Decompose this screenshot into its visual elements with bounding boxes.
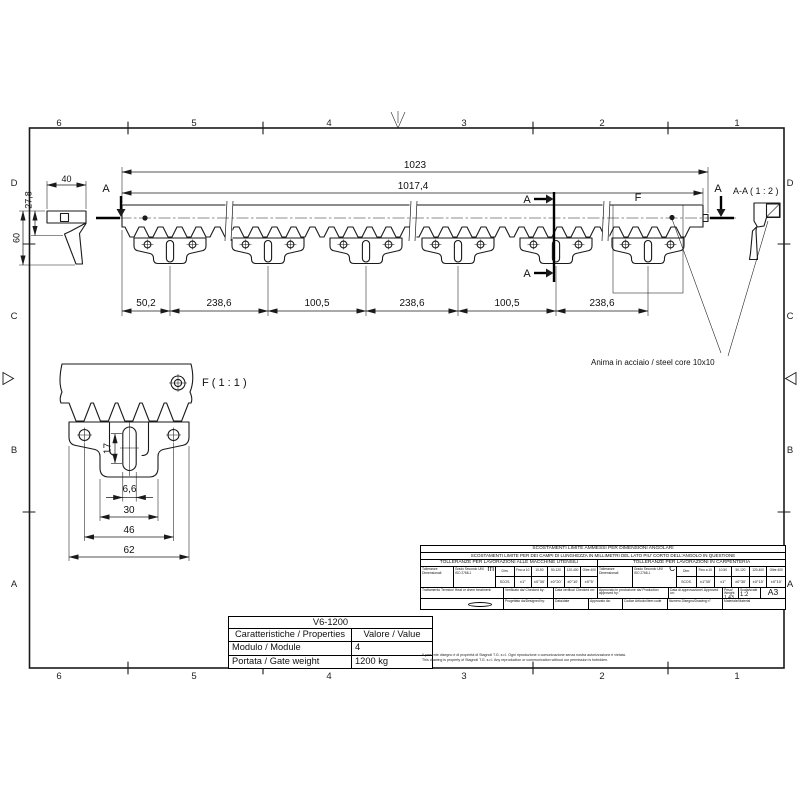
field-approved-by: Approvato da:: [589, 599, 623, 609]
grid-col-bottom-5: 5: [191, 671, 196, 682]
range-label: Oltre 400: [581, 567, 597, 577]
grid-row-left-a: A: [11, 579, 18, 590]
field-prod-approved-by: Approvato in produzione da/ Production a…: [598, 588, 669, 598]
tolerance-value: ±0°20': [548, 577, 564, 587]
tolerance-value: ±0°30': [732, 577, 749, 587]
grade-caption: Grado Secondo UNI ISO 2768-1: [455, 568, 485, 575]
tolerance-value: ±1°: [715, 577, 732, 587]
main-dim-overall: 1023: [404, 160, 427, 171]
grid-col-top-4: 4: [326, 118, 331, 129]
main-view: 1023 1017,4 50,2 238,6 100,5 238,6 100,5…: [96, 160, 738, 316]
chain-dim-label-3: 238,6: [399, 298, 424, 309]
field-item-code: Codice Articolo/Item code: [623, 599, 668, 609]
properties-table: V6-1200 Caratteristiche / Properties Val…: [228, 616, 433, 669]
grid-row-right-d: D: [787, 178, 794, 189]
range-label: 10-50: [532, 567, 548, 577]
tolerance-value: ±1°: [515, 577, 531, 587]
grid-row-left-b: B: [11, 445, 17, 456]
section-label-mid-top: A: [523, 194, 531, 206]
grid-col-bottom-6: 6: [56, 671, 61, 682]
core-dot-1: [142, 215, 147, 220]
bracket-1: [134, 238, 206, 264]
bracket-3: [330, 238, 402, 264]
grade-value: m: [487, 567, 494, 571]
chain-dim-label-1: 238,6: [206, 298, 231, 309]
core-note-leaders: [672, 219, 768, 356]
section-label-right: A: [714, 183, 722, 195]
grid-col-top-1: 1: [734, 118, 739, 129]
chain-dim-label-5: 238,6: [589, 298, 614, 309]
side-dim-rack-height: 27,8: [24, 191, 34, 209]
grid-row-right-a: A: [787, 579, 794, 590]
detail-dim-slot-width: 6,6: [123, 484, 137, 495]
tolerance-value: ±0°30': [532, 577, 548, 587]
field-designed-by: Progettato da/Designed by:: [504, 599, 554, 609]
table-row: Portata / Gate weight 1200 kg: [229, 656, 432, 668]
title-block: SCOSTAMENTI LIMITE AMMESSI PER DIMENSION…: [420, 545, 786, 610]
angular-tolerance-subtitle: SCOSTAMENTI LIMITE PER DEI CAMPI DI LUNG…: [421, 553, 785, 560]
scos-label: SCOS.: [677, 577, 696, 587]
machining-tolerance-table: Tolleranze Dimensionali Grado Secondo UN…: [421, 567, 598, 587]
angular-tolerance-title: SCOSTAMENTI LIMITE AMMESSI PER DIMENSION…: [421, 546, 785, 553]
detail-dim-overall-width: 62: [123, 545, 135, 556]
grid-row-left-c: C: [11, 311, 18, 322]
detail-teeth: [61, 403, 191, 421]
detail-dim-hole-spacing: 46: [123, 525, 135, 536]
table-row: Modulo / Module 4: [229, 642, 432, 655]
tolerance-value: ±0°10': [565, 577, 581, 587]
centering-mark-right: [786, 373, 797, 385]
range-label: 120-400: [750, 567, 767, 577]
detail-dim-slot-length: 17: [103, 443, 114, 455]
centering-mark-top: [391, 111, 405, 128]
grid-col-top-5: 5: [191, 118, 196, 129]
chain-dim-label-4: 100,5: [494, 298, 519, 309]
core-note: Anima in acciaio / steel core 10x10: [591, 358, 715, 367]
section-label-left: A: [102, 183, 110, 195]
range-label: Fino a 10: [515, 567, 531, 577]
chain-dim-label-0: 50,2: [136, 298, 156, 309]
carpentry-tolerance-title: TOLLERANZE PER LAVORAZIONI IN CARPENTERI…: [598, 560, 785, 566]
properties-col-header: Caratteristiche / Properties: [229, 629, 352, 641]
dim-label: Dim.: [677, 567, 696, 577]
grid-col-top-3: 3: [461, 118, 466, 129]
centering-mark-left: [3, 373, 14, 385]
drawing-linework: 6 5 4 3 2 1 6 5 4 3 2 1 D C B A D C B A …: [0, 0, 800, 800]
field-checked-on: Data verifica/ Checked on:: [554, 588, 598, 598]
side-view: 40 27,8 60: [12, 174, 87, 265]
tolerance-value: ±0°5': [581, 577, 597, 587]
grade-cell: Grado Secondo UNI ISO 2768-1 m: [454, 567, 496, 587]
field-weight: Peso/ Weight 1,43 kg: [723, 588, 739, 598]
company-logo-cell: [421, 599, 504, 609]
property-label: Portata / Gate weight: [229, 656, 352, 668]
tolerance-value: ±0°10': [767, 577, 785, 587]
range-label: 120-400: [565, 567, 581, 577]
grid-row-left-d: D: [11, 178, 18, 189]
bracket-2: [232, 238, 304, 264]
scale-value: 1:2: [740, 592, 759, 598]
tolerance-value: ±1°30': [697, 577, 714, 587]
grade-value: C: [669, 567, 675, 571]
range-label: Fino a 10: [697, 567, 714, 577]
grid-col-bottom-4: 4: [326, 671, 331, 682]
detail-letter-label: F: [635, 192, 642, 204]
grade-caption: Grado Secondo UNI ISO 2768-1: [634, 568, 666, 575]
bracket-6: [612, 238, 684, 264]
field-drawing-no: Numero Disegno/Drawing n°: [668, 599, 723, 609]
carpentry-tolerance-table: Tolleranze Dimensionali Grado Secondo UN…: [598, 567, 785, 587]
range-label: 50-120: [548, 567, 564, 577]
grade-cell: Grado Secondo UNI ISO 2768-1 C: [633, 567, 677, 587]
range-label: Oltre 400: [767, 567, 785, 577]
grid-col-bottom-1: 1: [734, 671, 739, 682]
field-material: Materiale/Material: [723, 599, 785, 609]
tolerance-value: ±0°15': [750, 577, 767, 587]
disclaimer-english: This drawing is property of Stagnoli T.G…: [422, 658, 702, 663]
section-view-label: A-A ( 1 : 2 ): [733, 186, 779, 196]
grid-row-right-c: C: [787, 311, 794, 322]
section-label-mid-bottom: A: [523, 268, 531, 280]
range-label: 10-50: [715, 567, 732, 577]
field-treatment: Trattamento Termico/ Heat or chem treatm…: [421, 588, 504, 598]
section-view-aa: A-A ( 1 : 2 ) Anima in acciaio / steel c…: [591, 186, 780, 367]
disclaimer: Il presente disegno è di proprietà di St…: [422, 653, 702, 662]
grid-col-top-6: 6: [56, 118, 61, 129]
machining-tolerance-title: TOLLERANZE PER LAVORAZIONI ALLE MACCHINE…: [421, 560, 598, 566]
chain-dim-label-2: 100,5: [304, 298, 329, 309]
property-value: 4: [352, 642, 432, 654]
property-label: Modulo / Module: [229, 642, 352, 654]
sheet-format: A3: [761, 588, 785, 598]
grid-row-right-b: B: [787, 445, 793, 456]
tolerance-label: Tolleranze Dimensionali: [421, 567, 454, 587]
side-dim-width: 40: [61, 174, 71, 184]
field-date: Data/date: [554, 599, 589, 609]
main-dim-body: 1017,4: [398, 181, 429, 192]
bracket-5: [520, 238, 592, 264]
property-value: 1200 kg: [352, 656, 432, 668]
dim-scos-column: Dim. SCOS.: [496, 567, 515, 587]
scos-label: SCOS.: [496, 577, 514, 587]
field-checked-by: Verificato da/ Checked by:: [504, 588, 554, 598]
company-logo: [468, 602, 492, 607]
field-scale: Scala/scale 1:2: [739, 588, 761, 598]
dim-scos-column: Dim. SCOS.: [677, 567, 697, 587]
grid-col-top-2: 2: [599, 118, 604, 129]
break-marks: [225, 201, 610, 241]
side-dim-total-height: 60: [12, 233, 22, 243]
dim-label: Dim.: [496, 567, 514, 577]
detail-view: F ( 1 : 1 ) 17 6,6 30 46 62: [60, 364, 247, 561]
properties-value-header: Valore / Value: [352, 629, 432, 641]
bracket-4: [422, 238, 494, 264]
detail-view-label: F ( 1 : 1 ): [202, 377, 247, 389]
grid-col-bottom-3: 3: [461, 671, 466, 682]
field-approved-on: Data di approvazione/ Approved on:: [669, 588, 723, 598]
grid-col-bottom-2: 2: [599, 671, 604, 682]
cad-drawing-sheet: 6 5 4 3 2 1 6 5 4 3 2 1 D C B A D C B A …: [0, 0, 800, 800]
properties-model: V6-1200: [229, 617, 432, 629]
range-label: 50-120: [732, 567, 749, 577]
detail-dim-body-width: 30: [123, 505, 135, 516]
tolerance-label: Tolleranze Dimensionali: [598, 567, 633, 587]
